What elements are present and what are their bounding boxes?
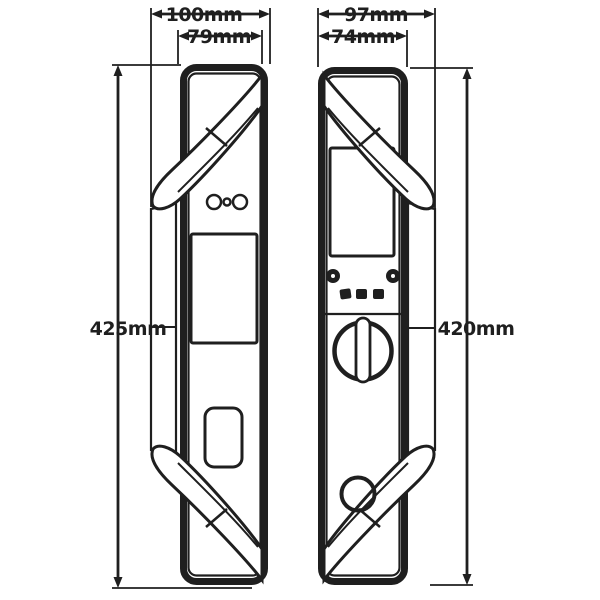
- back-flange: [408, 203, 435, 456]
- dim-front-body-width: 79mm: [178, 26, 262, 64]
- drawing-canvas: 100mm 79mm 425mm 97: [0, 0, 600, 600]
- dim-label-front-height: 425mm: [90, 318, 167, 340]
- dim-label-back-overall-width: 97mm: [344, 4, 408, 26]
- back-view: [322, 71, 436, 582]
- back-buttons: [339, 288, 384, 299]
- lock-dimension-drawing: 100mm 79mm 425mm 97: [0, 0, 600, 600]
- front-view: [151, 68, 265, 582]
- front-keypad-panel: [191, 234, 257, 343]
- dim-label-back-height: 420mm: [438, 318, 515, 340]
- front-key-cover: [205, 408, 242, 467]
- dim-label-front-overall-width: 100mm: [166, 4, 243, 26]
- dim-back-body-width: 74mm: [318, 26, 407, 67]
- dim-label-front-body-width: 79mm: [187, 26, 251, 48]
- dim-label-back-body-width: 74mm: [331, 26, 395, 48]
